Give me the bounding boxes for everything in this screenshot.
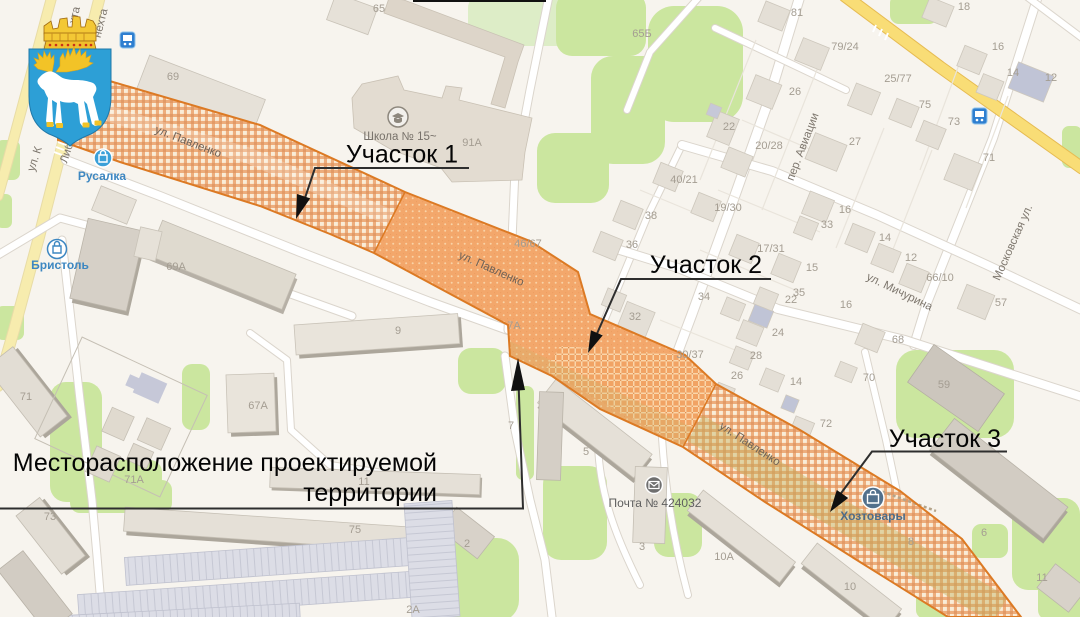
svg-text:67А: 67А — [248, 400, 268, 412]
svg-text:75: 75 — [349, 524, 361, 536]
svg-text:34: 34 — [698, 291, 710, 303]
svg-text:10А: 10А — [714, 551, 734, 563]
svg-text:30/37: 30/37 — [676, 349, 704, 361]
svg-text:10: 10 — [844, 581, 856, 593]
svg-text:33: 33 — [821, 219, 833, 231]
svg-text:8: 8 — [908, 536, 914, 548]
svg-text:16: 16 — [839, 204, 851, 216]
svg-text:46/67: 46/67 — [514, 238, 542, 250]
svg-text:65: 65 — [373, 3, 385, 15]
svg-text:65Б: 65Б — [632, 28, 651, 40]
svg-text:12: 12 — [905, 252, 917, 264]
svg-text:12: 12 — [1045, 72, 1057, 84]
svg-text:70: 70 — [863, 372, 875, 384]
svg-text:22: 22 — [785, 294, 797, 306]
svg-text:68: 68 — [892, 334, 904, 346]
svg-text:59: 59 — [938, 379, 950, 391]
svg-text:11: 11 — [1036, 572, 1047, 584]
svg-text:26: 26 — [789, 86, 801, 98]
svg-text:16: 16 — [840, 299, 852, 311]
svg-text:91А: 91А — [462, 137, 482, 149]
svg-text:72: 72 — [820, 418, 832, 430]
svg-text:79/24: 79/24 — [831, 41, 859, 53]
svg-text:Участок 3: Участок 3 — [889, 425, 1001, 453]
svg-text:25/77: 25/77 — [884, 73, 912, 85]
svg-text:24: 24 — [772, 327, 784, 339]
svg-text:18: 18 — [958, 1, 970, 13]
svg-text:20/28: 20/28 — [755, 140, 783, 152]
svg-text:14: 14 — [879, 232, 891, 244]
svg-text:5: 5 — [583, 446, 589, 458]
svg-text:Русалка: Русалка — [78, 169, 127, 183]
svg-text:15: 15 — [806, 262, 818, 274]
svg-text:Месторасположение проектируемо: Месторасположение проектируемой — [13, 449, 437, 477]
svg-text:9: 9 — [395, 325, 401, 337]
svg-text:71: 71 — [20, 391, 32, 403]
svg-text:66/10: 66/10 — [926, 272, 954, 284]
svg-text:26: 26 — [731, 370, 743, 382]
svg-text:36: 36 — [626, 239, 638, 251]
svg-text:16: 16 — [992, 41, 1004, 53]
svg-text:14: 14 — [790, 376, 802, 388]
svg-text:69А: 69А — [166, 261, 186, 273]
svg-text:32: 32 — [629, 311, 641, 323]
svg-text:Участок 2: Участок 2 — [650, 251, 762, 279]
svg-text:69: 69 — [167, 71, 179, 83]
svg-text:7А: 7А — [507, 320, 521, 332]
svg-text:73: 73 — [948, 116, 960, 128]
svg-text:14: 14 — [1007, 67, 1019, 79]
svg-text:2А: 2А — [406, 604, 420, 616]
svg-text:57: 57 — [995, 297, 1007, 309]
svg-text:22: 22 — [723, 121, 735, 133]
svg-text:2: 2 — [464, 538, 470, 550]
svg-text:19/30: 19/30 — [714, 202, 742, 214]
svg-text:73: 73 — [44, 511, 56, 523]
svg-text:75: 75 — [919, 99, 931, 111]
svg-text:территории: территории — [303, 479, 437, 507]
svg-text:27: 27 — [849, 136, 861, 148]
svg-text:Участок 1: Участок 1 — [346, 141, 458, 169]
svg-text:3: 3 — [639, 541, 645, 553]
svg-text:81: 81 — [791, 7, 803, 19]
svg-text:Хозтовары: Хозтовары — [840, 509, 906, 523]
svg-text:28: 28 — [750, 350, 762, 362]
svg-text:Бристоль: Бристоль — [31, 258, 89, 272]
svg-text:6: 6 — [981, 527, 987, 539]
svg-text:71: 71 — [983, 152, 995, 164]
svg-text:40/21: 40/21 — [670, 174, 698, 186]
svg-text:7: 7 — [508, 420, 514, 432]
svg-text:38: 38 — [645, 210, 657, 222]
svg-text:Почта № 424032: Почта № 424032 — [609, 496, 702, 510]
